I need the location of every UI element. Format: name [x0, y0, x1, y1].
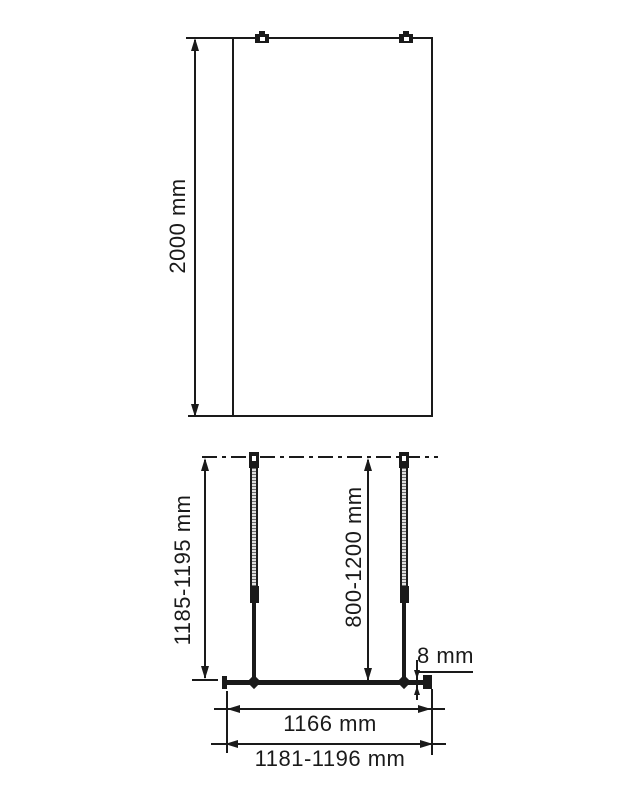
- bar-outer-tube: [250, 468, 258, 586]
- glass-thickness-label: 8 mm: [417, 644, 487, 668]
- dimension-line: [211, 743, 446, 745]
- height-dimension-label: 2000 mm: [165, 156, 191, 296]
- connector-hole: [402, 456, 406, 461]
- bar-inner-rod: [252, 603, 256, 680]
- connector-hole: [252, 456, 256, 461]
- arrow-down-icon: [414, 670, 420, 679]
- arrow-down-icon: [201, 666, 209, 679]
- arrow-down-icon: [191, 404, 199, 417]
- arrow-up-icon: [191, 38, 199, 51]
- bracket-hole: [260, 37, 265, 42]
- install-height-label: 1185-1195 mm: [170, 484, 196, 656]
- bar-inner-rod: [402, 603, 406, 680]
- technical-drawing-canvas: 2000 mm: [0, 0, 623, 800]
- bar-length-label: 800-1200 mm: [341, 471, 367, 643]
- bracket-hole: [404, 37, 409, 42]
- dimension-line: [367, 460, 369, 680]
- wall-bracket-left-icon: [255, 31, 269, 43]
- bar-wall-connector-icon: [399, 452, 409, 468]
- bar-outer-tube: [400, 468, 408, 586]
- height-dimension-line: [194, 40, 196, 415]
- glass-width-label: 1166 mm: [230, 712, 430, 736]
- bar-clamp: [400, 586, 409, 603]
- bar-wall-connector-icon: [249, 452, 259, 468]
- total-width-label: 1181-1196 mm: [214, 747, 446, 771]
- extension-tick: [192, 679, 218, 681]
- leader-line: [417, 671, 473, 673]
- bar-clamp: [250, 586, 259, 603]
- wall-bracket-right-icon: [399, 31, 413, 43]
- arrow-up-icon: [414, 686, 420, 695]
- dimension-line: [204, 460, 206, 678]
- arrow-up-icon: [364, 458, 372, 471]
- dimension-line: [214, 708, 445, 710]
- arrow-up-icon: [201, 458, 209, 471]
- glass-endcap-right: [423, 675, 432, 689]
- glass-endcap-left: [222, 676, 227, 689]
- glass-panel-plan: [225, 680, 429, 685]
- glass-panel-front: [232, 37, 433, 417]
- arrow-down-icon: [364, 668, 372, 681]
